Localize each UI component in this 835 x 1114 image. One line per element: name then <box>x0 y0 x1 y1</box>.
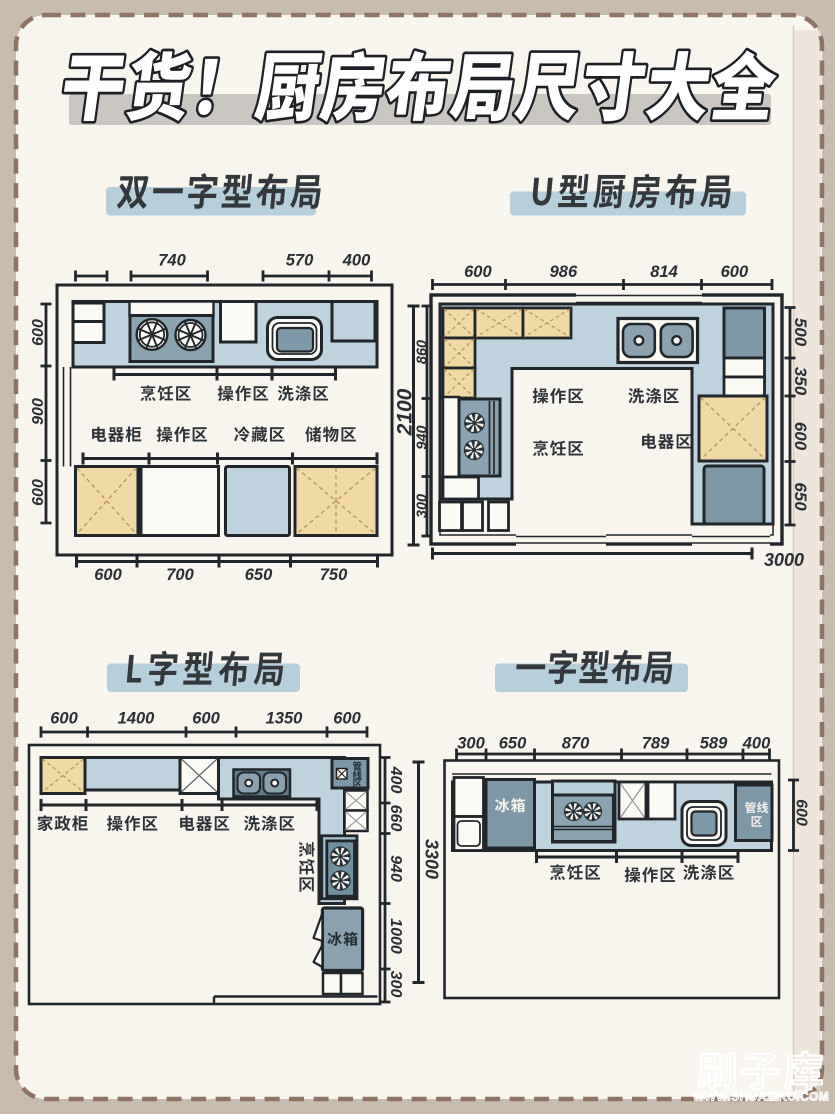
svg-text:3000: 3000 <box>764 550 804 570</box>
svg-text:700: 700 <box>166 566 194 584</box>
svg-text:940: 940 <box>387 855 404 882</box>
svg-text:900: 900 <box>30 398 47 425</box>
svg-text:860: 860 <box>415 340 431 364</box>
svg-text:3300: 3300 <box>422 839 442 879</box>
svg-text:400: 400 <box>342 252 371 270</box>
svg-text:600: 600 <box>793 799 810 826</box>
svg-text:600: 600 <box>192 710 220 728</box>
svg-text:600: 600 <box>30 319 47 346</box>
svg-text:940: 940 <box>415 425 431 449</box>
svg-text:740: 740 <box>158 252 186 270</box>
svg-text:2100: 2100 <box>394 388 417 436</box>
svg-text:1400: 1400 <box>118 710 156 728</box>
svg-text:600: 600 <box>791 422 810 451</box>
svg-text:600: 600 <box>50 710 78 728</box>
svg-text:1000: 1000 <box>387 918 404 954</box>
svg-text:570: 570 <box>286 252 314 270</box>
svg-text:589: 589 <box>700 735 728 753</box>
svg-text:650: 650 <box>245 566 273 584</box>
svg-text:600: 600 <box>94 566 122 584</box>
svg-text:500: 500 <box>791 318 810 347</box>
svg-text:660: 660 <box>387 805 404 832</box>
svg-text:789: 789 <box>642 735 670 753</box>
svg-text:650: 650 <box>499 735 527 753</box>
svg-text:400: 400 <box>742 735 771 753</box>
svg-text:600: 600 <box>30 479 47 506</box>
svg-text:814: 814 <box>650 263 678 281</box>
svg-text:650: 650 <box>791 482 810 511</box>
svg-text:870: 870 <box>562 735 590 753</box>
svg-text:300: 300 <box>415 494 431 518</box>
svg-text:600: 600 <box>464 263 492 281</box>
svg-text:600: 600 <box>721 263 749 281</box>
svg-text:300: 300 <box>387 971 404 998</box>
svg-text:400: 400 <box>387 766 404 794</box>
svg-text:750: 750 <box>320 566 348 584</box>
svg-text:WWW.SHUAZIKU.COM: WWW.SHUAZIKU.COM <box>693 1090 829 1104</box>
svg-text:600: 600 <box>333 710 361 728</box>
svg-text:1350: 1350 <box>266 710 304 728</box>
svg-text:350: 350 <box>791 367 810 396</box>
svg-text:986: 986 <box>550 263 578 281</box>
svg-text:300: 300 <box>457 735 485 753</box>
